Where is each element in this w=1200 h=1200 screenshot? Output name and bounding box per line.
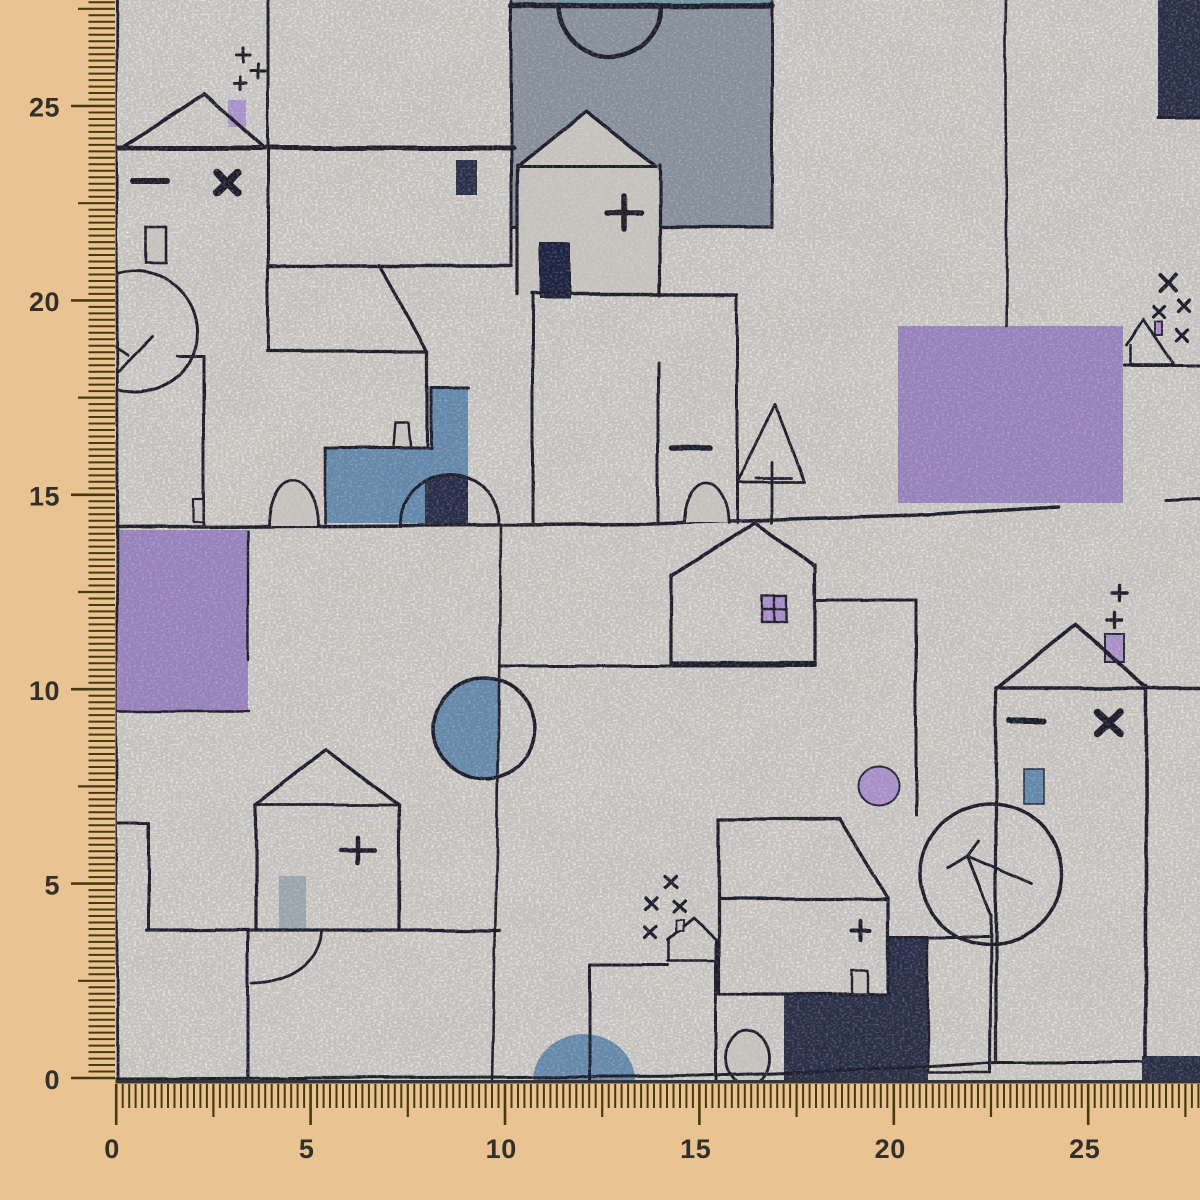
svg-text:10: 10 — [486, 1134, 517, 1164]
svg-text:0: 0 — [44, 1065, 60, 1095]
svg-text:20: 20 — [29, 287, 60, 317]
svg-text:20: 20 — [875, 1134, 906, 1164]
svg-text:5: 5 — [299, 1134, 315, 1164]
svg-text:25: 25 — [1069, 1134, 1100, 1164]
svg-text:0: 0 — [104, 1134, 120, 1164]
svg-text:5: 5 — [44, 871, 60, 901]
svg-text:15: 15 — [680, 1134, 711, 1164]
svg-text:10: 10 — [29, 676, 60, 706]
svg-text:25: 25 — [29, 93, 60, 123]
svg-text:15: 15 — [29, 482, 60, 512]
